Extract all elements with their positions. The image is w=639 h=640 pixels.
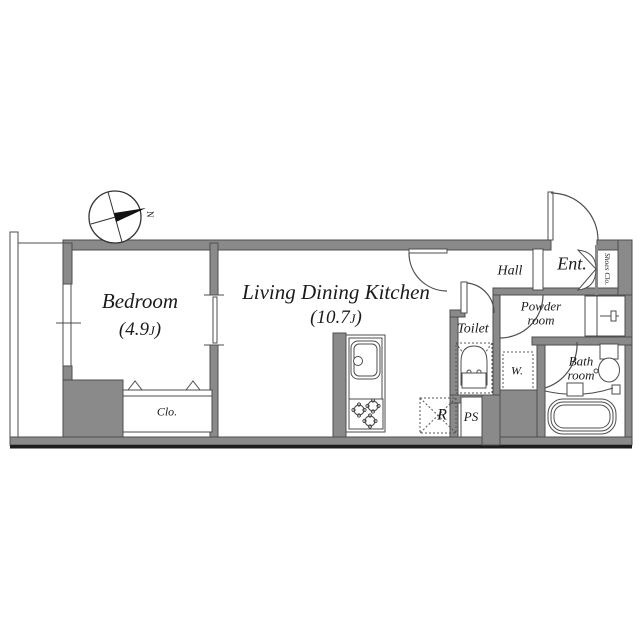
toilet-fixture [456,343,492,393]
toilet-door [461,282,494,313]
hall-label: Hall [498,265,523,280]
bathtub [548,399,616,434]
compass-north-label: N [145,211,155,218]
washbasin [585,296,625,336]
closet-label: Clo. [157,406,177,419]
bedroom-window [56,284,81,366]
balcony-wall [10,232,63,437]
washing-machine-label: W. [511,365,523,378]
entrance-door [548,192,598,240]
toilet-label: Toilet [457,323,488,338]
ldk-size: (10.7J) [310,308,362,328]
bath-room-label: Bathroom [568,354,595,381]
bedroom-size: (4.9J) [119,320,161,340]
entrance-label: Ent. [557,255,587,274]
bath-fixture [594,344,620,394]
ldk-label: Living Dining Kitchen [242,281,430,303]
stove [349,399,383,429]
entrance-step [533,249,543,290]
bedroom-sliding-door [204,295,224,345]
bath-step [545,383,613,396]
refrigerator-label: R [437,408,447,425]
floor-plan: N Bedroom (4.9J) Living Dining Kitchen (… [0,0,639,640]
bedroom-label: Bedroom [102,290,178,312]
compass-icon: N [89,191,155,243]
kitchen-sink [351,341,380,379]
shoes-closet-label: Shoes Clo. [603,253,611,285]
pipe-space-label: PS [464,410,478,424]
powder-room-label: Powderroom [521,299,561,326]
